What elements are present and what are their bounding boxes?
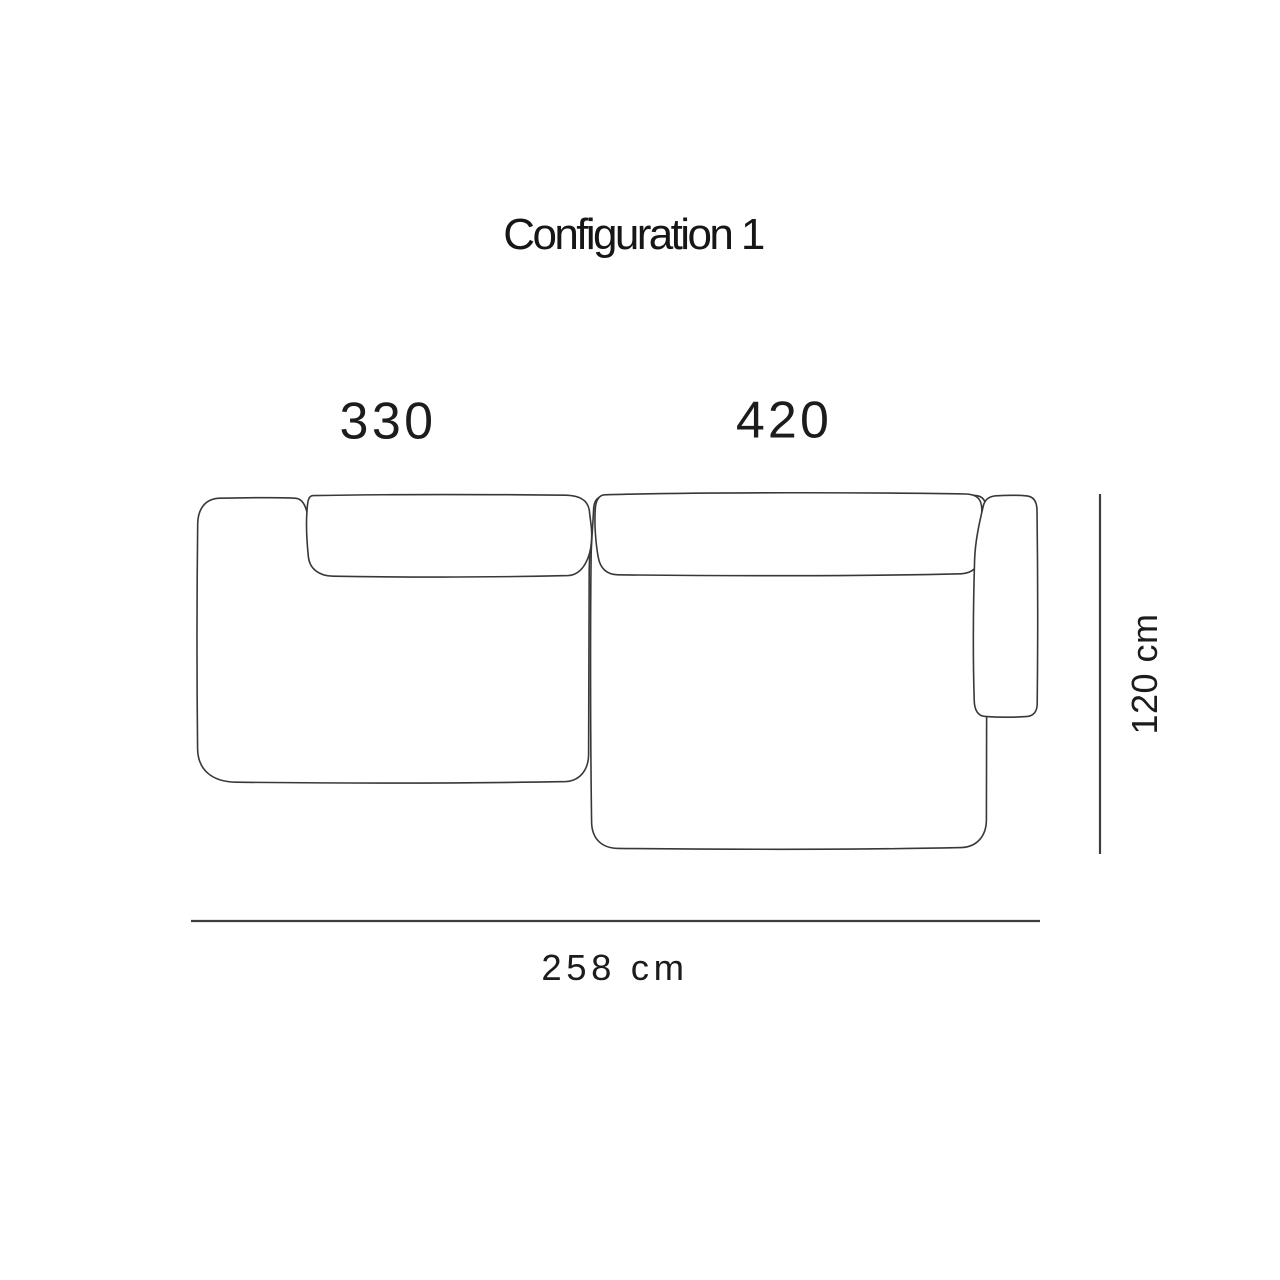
svg-text:420: 420 bbox=[736, 392, 832, 450]
svg-text:Configuration 1: Configuration 1 bbox=[503, 210, 764, 259]
svg-text:258 cm: 258 cm bbox=[541, 947, 688, 988]
svg-text:330: 330 bbox=[340, 393, 437, 451]
svg-text:120 cm: 120 cm bbox=[1124, 613, 1165, 734]
